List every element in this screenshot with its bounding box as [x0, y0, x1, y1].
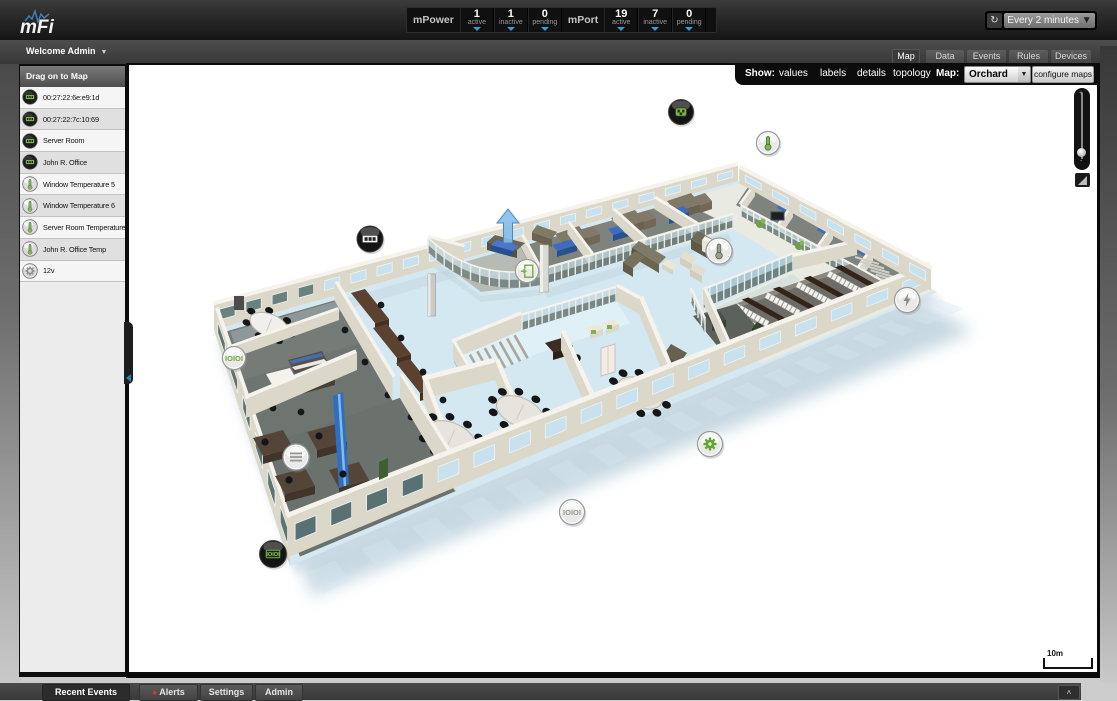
svg-text:IOIOI: IOIOI — [266, 552, 280, 558]
svg-text:IOIOI: IOIOI — [225, 354, 243, 363]
svg-text:mFi: mFi — [20, 17, 55, 36]
svg-text:IOIOI: IOIOI — [563, 508, 581, 517]
